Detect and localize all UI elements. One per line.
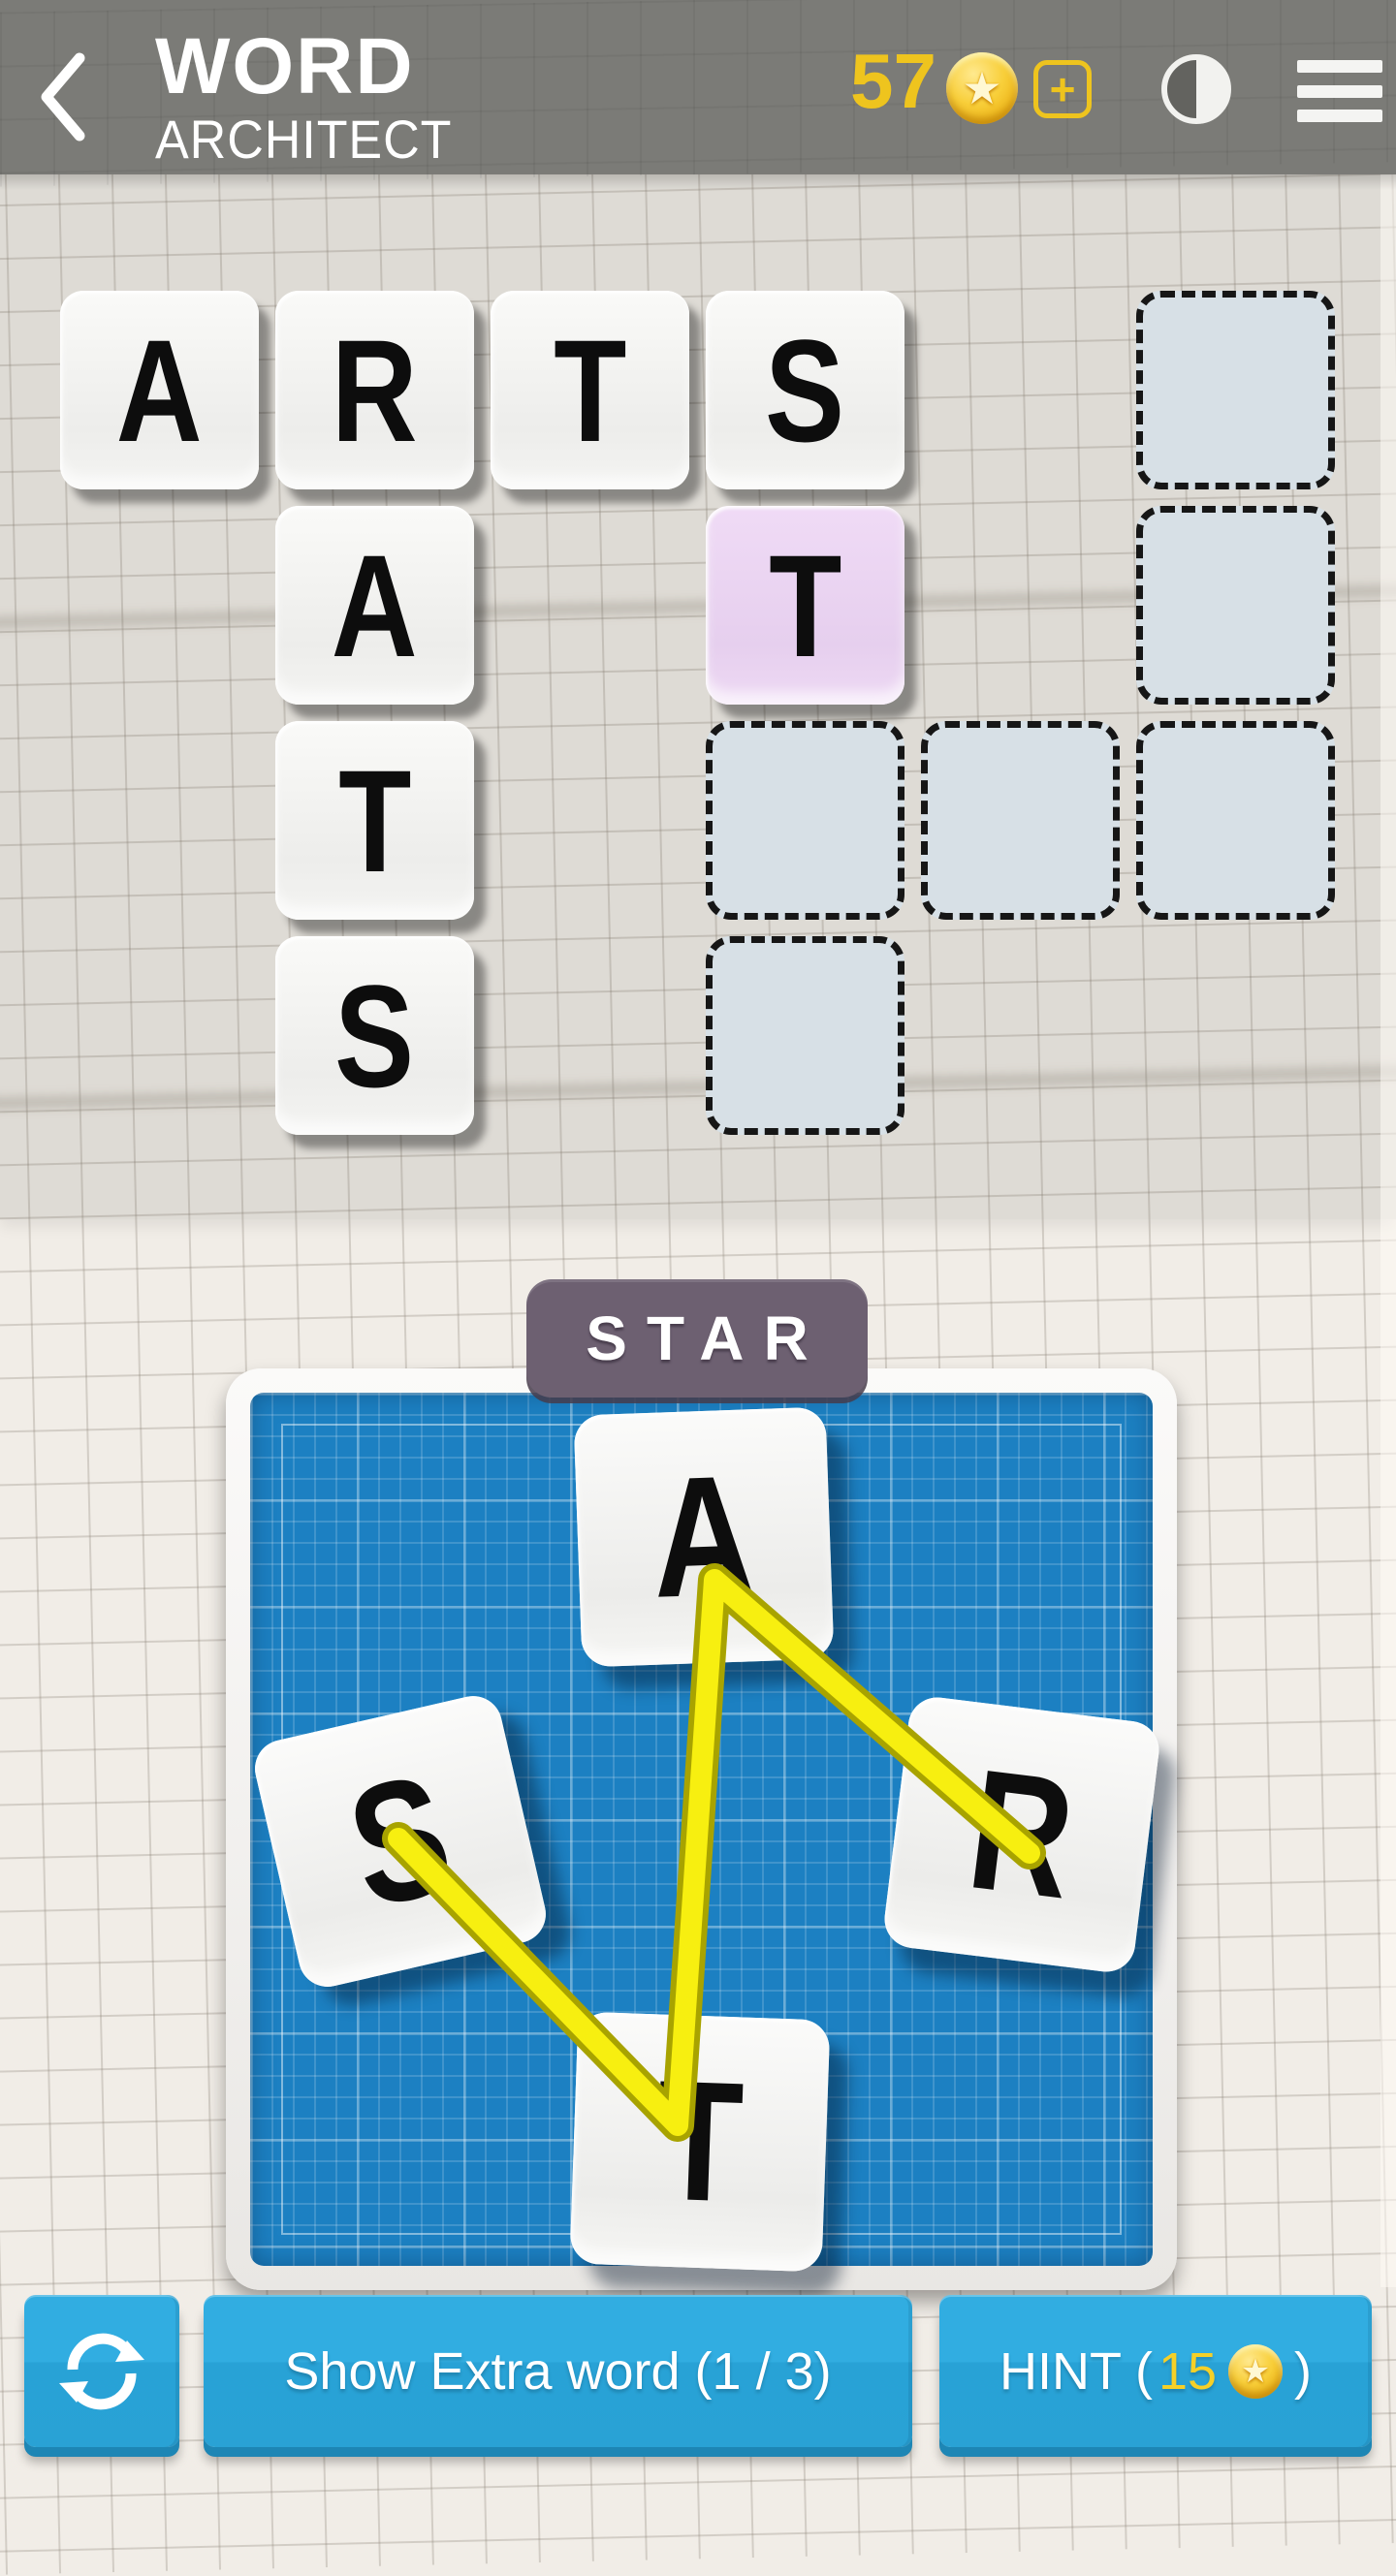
chevron-left-icon <box>33 48 91 145</box>
hint-cost: 15 <box>1158 2341 1217 2402</box>
word-architect-screen: { "header": { "app_title_line1": "WORD",… <box>0 0 1396 2481</box>
grid-cell-empty <box>921 721 1120 920</box>
plus-icon: + <box>1050 67 1076 111</box>
menu-button[interactable] <box>1297 60 1382 122</box>
hamburger-icon <box>1297 60 1382 73</box>
wheel-letter-glyph: T <box>654 2056 746 2229</box>
grid-cell-empty <box>706 936 904 1135</box>
back-button[interactable] <box>33 48 91 145</box>
star-coin-icon: ★ <box>1228 2344 1283 2399</box>
grid-cell-t: T <box>706 506 904 705</box>
hamburger-icon <box>1297 85 1382 98</box>
grid-cell-empty <box>1136 506 1335 705</box>
current-word-badge: STAR <box>526 1279 868 1398</box>
current-word-text: STAR <box>566 1307 827 1369</box>
star-glyph: ★ <box>1241 2355 1270 2388</box>
wheel-letter-t[interactable]: T <box>570 2012 831 2273</box>
wheel-letter-glyph: R <box>962 1744 1083 1925</box>
shuffle-button[interactable] <box>24 2295 179 2447</box>
wheel-letter-r[interactable]: R <box>881 1694 1162 1975</box>
grid-cell-t: T <box>491 291 689 489</box>
show-extra-word-button[interactable]: Show Extra word (1 / 3) <box>204 2295 912 2447</box>
grid-letter: T <box>769 533 841 678</box>
add-coins-button[interactable]: + <box>1033 60 1092 118</box>
grid-letter: T <box>554 318 626 463</box>
app-title-line2: ARCHITECT <box>155 112 452 167</box>
grid-cell-s: S <box>706 291 904 489</box>
hint-prefix: HINT ( <box>999 2341 1153 2402</box>
wheel-letter-glyph: S <box>335 1747 464 1934</box>
grid-cell-s: S <box>275 936 474 1135</box>
grid-cell-empty <box>706 721 904 920</box>
grid-letter: S <box>765 318 844 463</box>
star-glyph: ★ <box>962 66 1001 110</box>
grid-cell-empty <box>1136 291 1335 489</box>
coin-count: 57 <box>820 43 936 120</box>
contrast-toggle-button[interactable] <box>1161 54 1231 124</box>
hint-button[interactable]: HINT ( 15 ★ ) <box>939 2295 1372 2447</box>
hint-suffix: ) <box>1294 2341 1312 2402</box>
grid-letter: S <box>334 963 414 1109</box>
grid-letter: A <box>332 533 418 678</box>
star-coin-icon: ★ <box>946 52 1018 124</box>
grid-cell-a: A <box>60 291 259 489</box>
extra-word-label: Show Extra word (1 / 3) <box>284 2341 831 2402</box>
sync-arrows-icon <box>53 2323 150 2420</box>
wheel-letter-a[interactable]: A <box>574 1407 835 1668</box>
grid-cell-t: T <box>275 721 474 920</box>
hamburger-icon <box>1297 110 1382 122</box>
grid-letter: A <box>116 318 203 463</box>
grid-cell-r: R <box>275 291 474 489</box>
grid-letter: R <box>332 318 418 463</box>
grid-cell-a: A <box>275 506 474 705</box>
wheel-letter-glyph: A <box>650 1450 757 1624</box>
grid-cell-empty <box>1136 721 1335 920</box>
grid-letter: T <box>338 748 411 894</box>
app-title-line1: WORD <box>155 27 415 107</box>
